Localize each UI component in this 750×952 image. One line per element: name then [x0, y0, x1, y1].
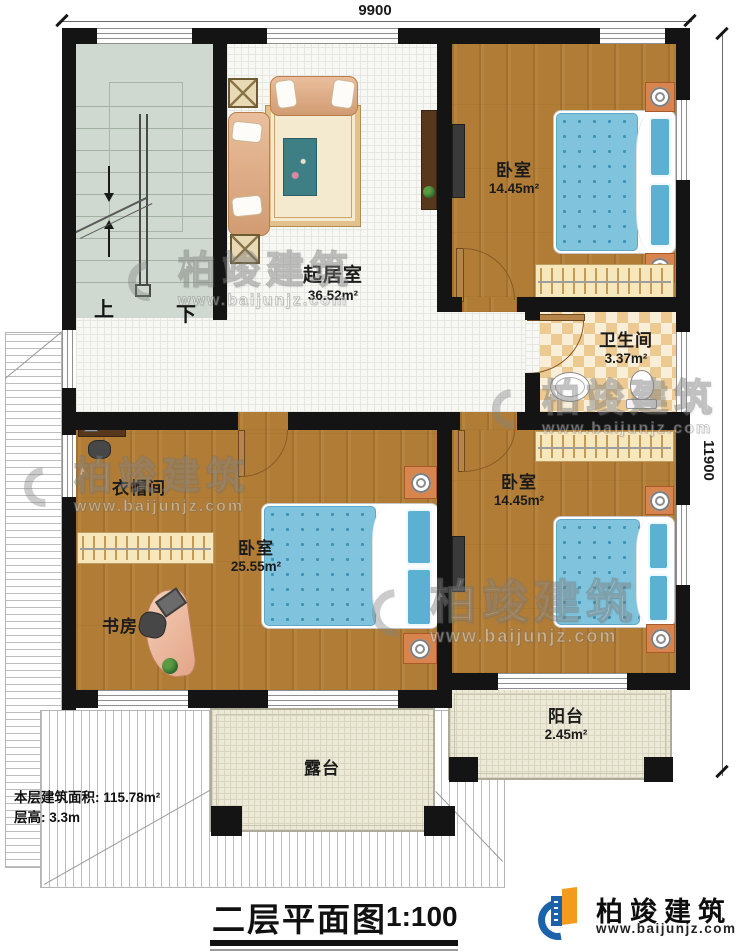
- side-table: [230, 234, 260, 264]
- bed-pillow: [648, 522, 669, 570]
- rug-center: [283, 138, 317, 196]
- stair-arrow: [108, 166, 110, 194]
- toilet-tank: [626, 399, 657, 409]
- window: [62, 435, 76, 497]
- stairs-up-label: 上: [94, 293, 114, 322]
- pillar: [424, 806, 455, 836]
- lamp-icon: [650, 87, 670, 107]
- wall-segment: [525, 373, 540, 430]
- stair-arrow: [108, 229, 110, 257]
- wall-segment: [627, 673, 676, 690]
- room-label-study: 书房: [85, 616, 155, 637]
- stair-arrow-down-icon: [104, 193, 114, 202]
- dimension-width: 9900: [345, 2, 405, 19]
- plan-title: 二层平面图: [212, 893, 387, 941]
- nightstand: [404, 466, 437, 499]
- window: [676, 505, 690, 585]
- window: [267, 28, 398, 44]
- wardrobe-rail: [80, 548, 211, 550]
- sink-basin: [555, 377, 585, 397]
- room-label-cloakroom: 衣帽间: [94, 478, 184, 499]
- dimension-line-top: [62, 21, 692, 22]
- chair: [88, 440, 111, 459]
- room-area: 3.37m²: [566, 351, 686, 368]
- brand-logo-building-icon: [551, 896, 562, 926]
- wall-segment: [437, 430, 452, 690]
- room-label-bathroom: 卫生间 3.37m²: [566, 330, 686, 368]
- potted-plant: [162, 658, 178, 674]
- balcony-door: [498, 673, 627, 690]
- lamp-icon: [651, 629, 671, 649]
- pillar: [644, 757, 673, 782]
- room-name: 阳台: [506, 706, 626, 727]
- sofa-pillow: [231, 120, 263, 143]
- room-label-bedroom-top: 卧室 14.45m²: [454, 160, 574, 198]
- nightstand: [646, 624, 675, 653]
- title-underline-thin: [210, 949, 458, 951]
- lamp-icon: [650, 491, 670, 511]
- floor-height-info: 层高: 3.3m: [14, 806, 80, 826]
- wall-segment: [525, 312, 540, 320]
- window: [97, 28, 192, 44]
- wall-segment: [213, 28, 227, 320]
- room-name: 衣帽间: [94, 478, 184, 499]
- wall-segment: [62, 412, 238, 430]
- room-label-bedroom-right: 卧室 14.45m²: [459, 472, 579, 510]
- terrace-door: [268, 690, 398, 708]
- room-area: 25.55m²: [196, 559, 316, 576]
- bed-pillow: [649, 117, 671, 177]
- wall-segment: [517, 412, 690, 430]
- dimension-line-right: [722, 34, 723, 776]
- toilet: [630, 370, 654, 400]
- bed-pillow: [406, 568, 432, 626]
- room-name: 卧室: [459, 472, 579, 493]
- hallway-floor: [437, 312, 525, 412]
- sofa-pillow: [274, 79, 298, 110]
- room-name: 卧室: [454, 160, 574, 181]
- floor-plan-canvas: 起居室 36.52m² 卧室 14.45m² 卫生间 3.37m² 衣帽间 卧室…: [0, 0, 750, 952]
- room-name: 起居室: [273, 264, 393, 288]
- bed-pillow: [648, 574, 669, 622]
- bed-blanket-fold: [372, 506, 400, 626]
- wardrobe-rail: [538, 281, 671, 283]
- window: [98, 690, 188, 708]
- pillar: [449, 757, 478, 782]
- room-label-terrace: 露台: [282, 758, 362, 779]
- wall-segment: [452, 673, 498, 690]
- window: [62, 330, 76, 388]
- plan-scale: 1:100: [386, 901, 458, 933]
- stairs-down-label: 下: [176, 298, 196, 327]
- pillar: [211, 806, 242, 836]
- wall-segment: [437, 28, 452, 312]
- hallway-floor: [76, 318, 228, 412]
- dimension-height: 11900: [700, 440, 717, 481]
- room-name: 卧室: [196, 538, 316, 559]
- lamp-icon: [411, 473, 431, 493]
- sink: [550, 372, 590, 402]
- potted-plant: [423, 186, 435, 198]
- tv: [452, 536, 465, 592]
- room-area: 14.45m²: [459, 493, 579, 510]
- wardrobe: [77, 532, 214, 564]
- room-area: 14.45m²: [454, 181, 574, 198]
- wall-segment: [517, 297, 690, 312]
- side-table: [228, 78, 258, 108]
- nightstand: [645, 82, 675, 112]
- wall-segment: [437, 297, 462, 312]
- room-area: 36.52m²: [273, 288, 393, 305]
- wall-segment: [188, 690, 268, 708]
- sofa-pillow: [231, 194, 263, 217]
- doorway-floor: [460, 412, 517, 430]
- wall-segment: [398, 690, 452, 708]
- sofa-pillow: [330, 79, 356, 110]
- room-label-balcony: 阳台 2.45m²: [506, 706, 626, 744]
- wardrobe: [535, 264, 674, 298]
- wardrobe: [535, 431, 674, 462]
- window: [676, 100, 690, 180]
- room-area: 2.45m²: [506, 727, 626, 744]
- doorway-floor: [238, 412, 288, 430]
- wall-segment: [62, 690, 98, 708]
- room-name: 露台: [282, 758, 362, 779]
- brand-logo-building-icon: [562, 887, 577, 925]
- room-name: 卫生间: [566, 330, 686, 351]
- floor-area-info: 本层建筑面积: 115.78m²: [14, 786, 160, 806]
- lamp-icon: [410, 639, 430, 659]
- bed-mattress: [556, 519, 640, 625]
- nightstand: [403, 633, 437, 664]
- room-name: 书房: [85, 616, 155, 637]
- brand-url: www.baijunjz.com: [596, 921, 737, 936]
- bed-pillow: [406, 509, 432, 565]
- nightstand: [645, 486, 674, 515]
- title-underline: [210, 940, 458, 946]
- stair-handrail-cap: [135, 284, 151, 297]
- room-label-living: 起居室 36.52m²: [273, 264, 393, 305]
- room-label-bedroom-master: 卧室 25.55m²: [196, 538, 316, 576]
- wardrobe-rail: [538, 447, 671, 449]
- wall-segment: [288, 412, 460, 430]
- window: [600, 28, 665, 44]
- bed-pillow: [649, 183, 671, 247]
